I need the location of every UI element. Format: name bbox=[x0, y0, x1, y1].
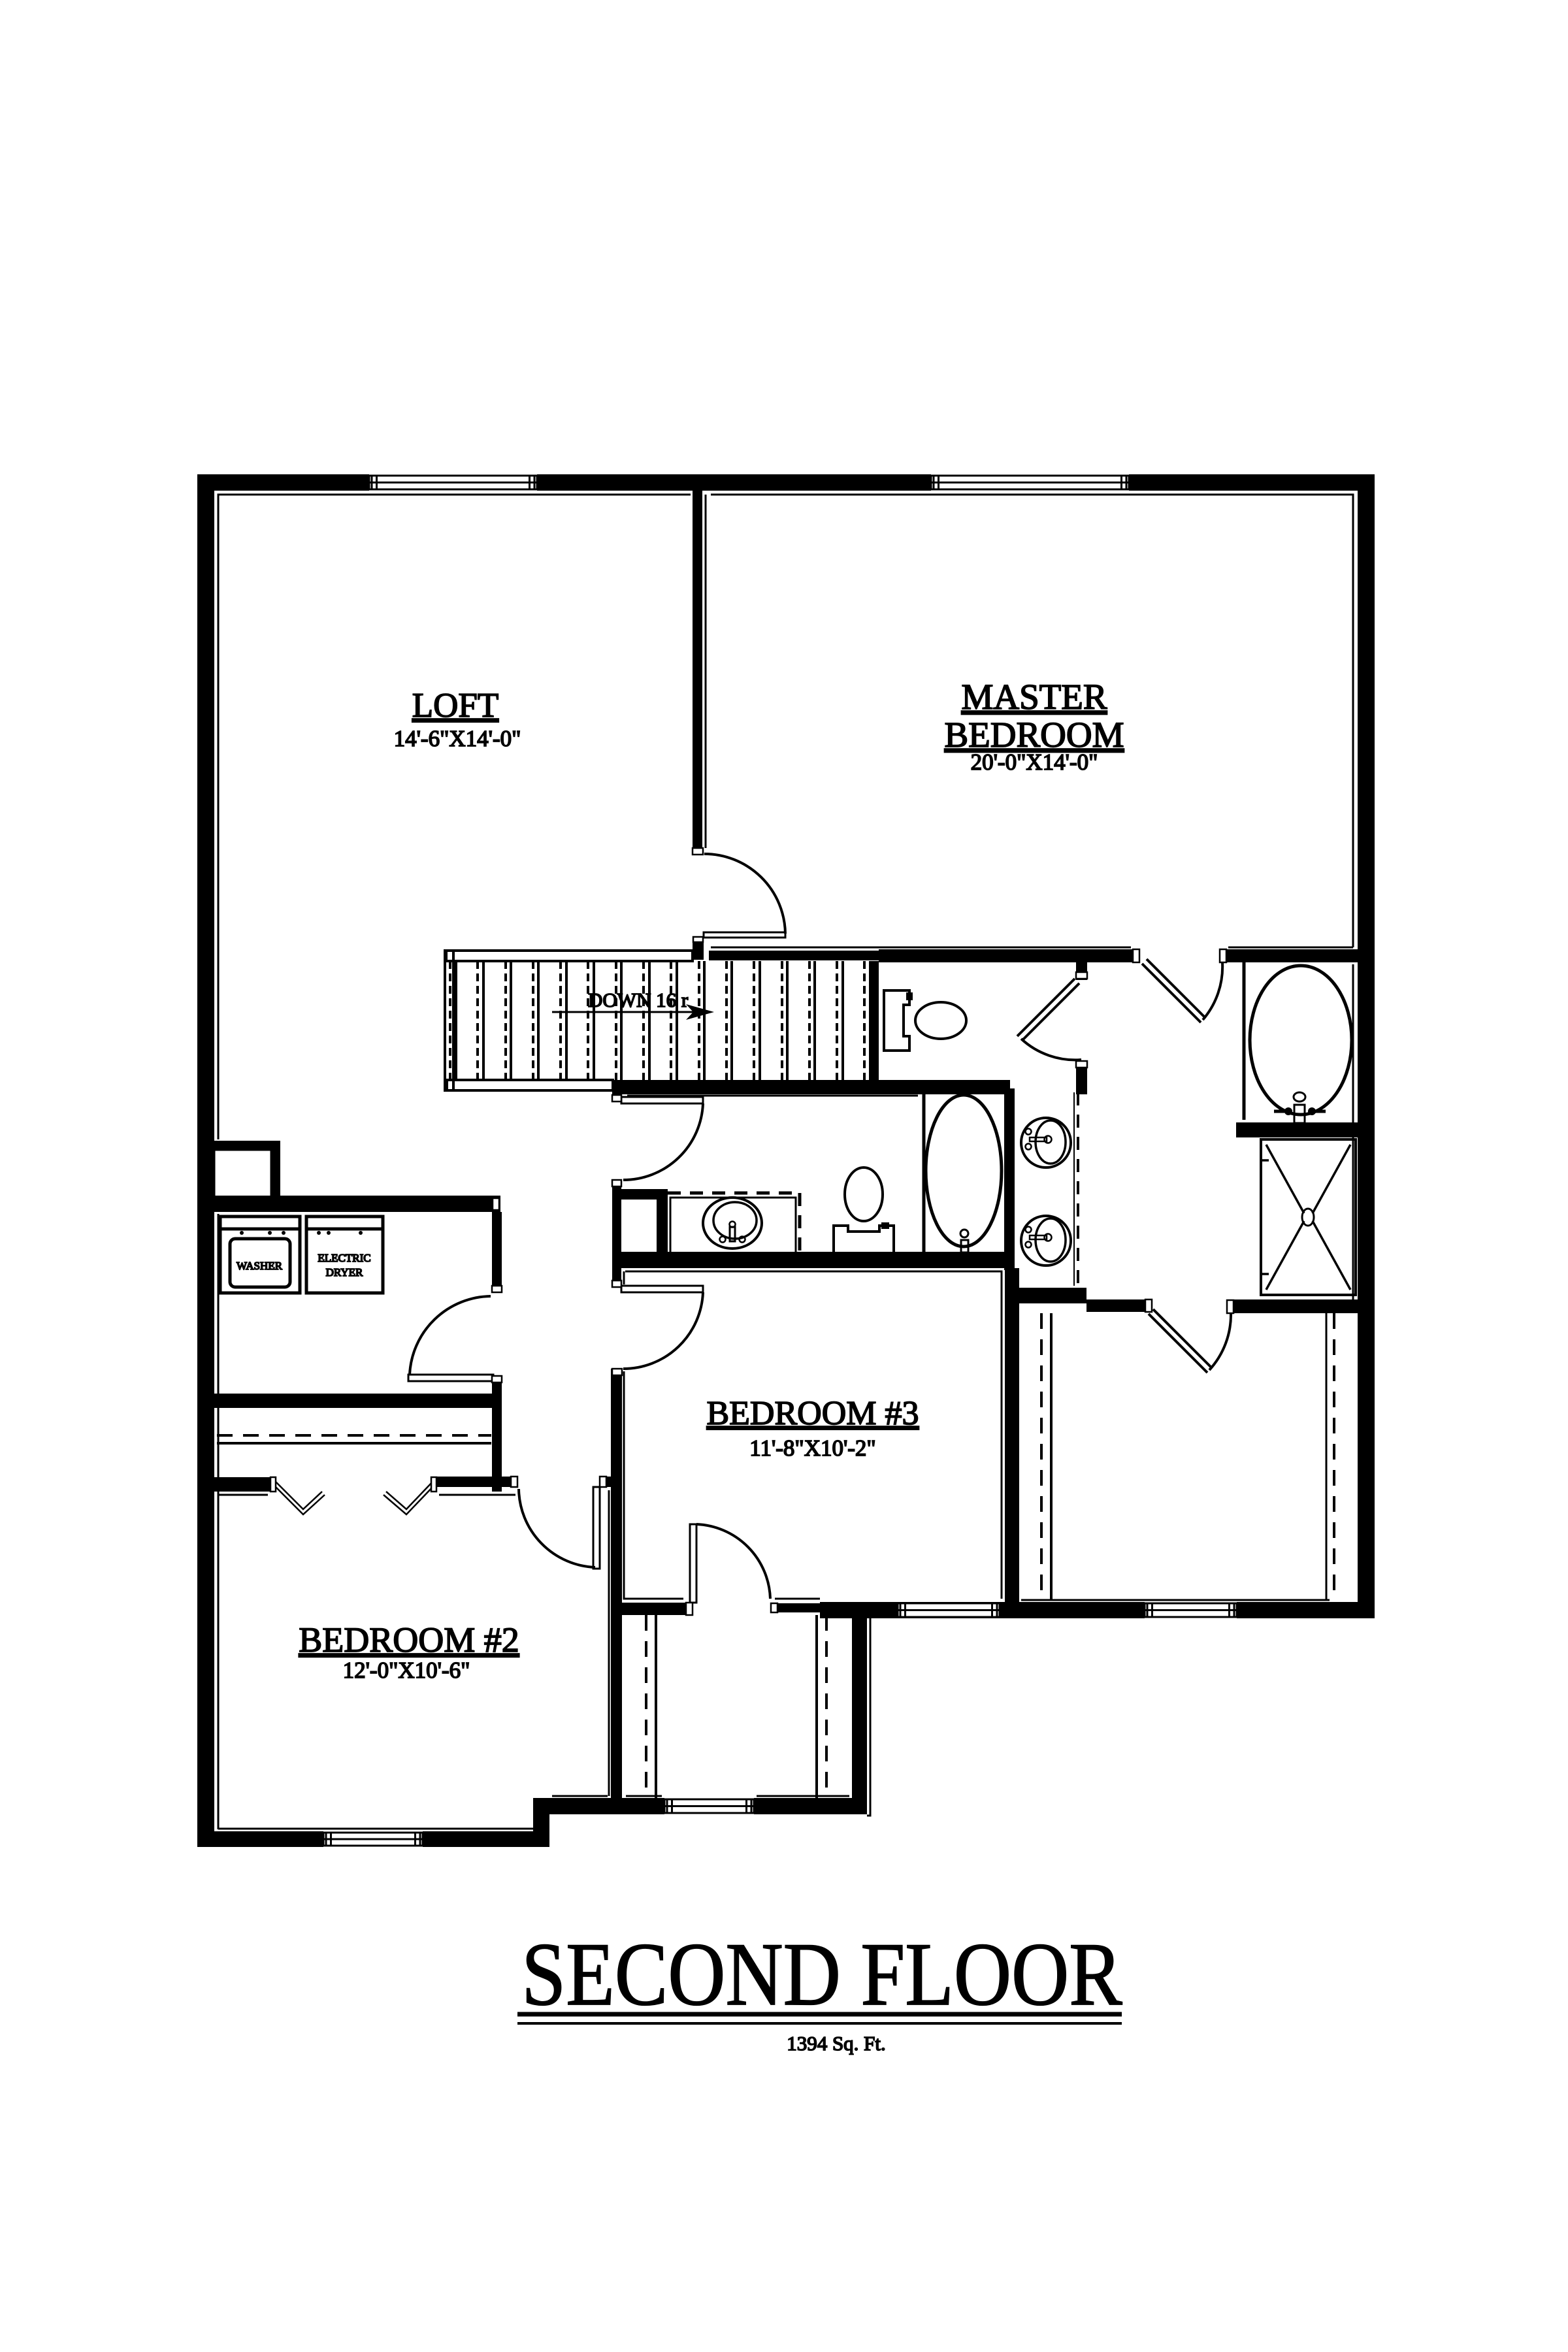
svg-text:ELECTRIC: ELECTRIC bbox=[318, 1252, 370, 1264]
svg-text:BEDROOM #3: BEDROOM #3 bbox=[706, 1395, 919, 1432]
svg-text:LOFT: LOFT bbox=[412, 687, 499, 725]
svg-text:1394 Sq. Ft.: 1394 Sq. Ft. bbox=[787, 2032, 886, 2055]
svg-text:11'-8"X10'-2": 11'-8"X10'-2" bbox=[749, 1435, 875, 1461]
svg-text:20'-0"X14'-0": 20'-0"X14'-0" bbox=[971, 749, 1098, 775]
svg-text:DOWN 16 r: DOWN 16 r bbox=[588, 988, 689, 1011]
svg-text:14'-6"X14'-0": 14'-6"X14'-0" bbox=[394, 726, 521, 751]
svg-text:BEDROOM #2: BEDROOM #2 bbox=[299, 1620, 519, 1659]
svg-text:DRYER: DRYER bbox=[326, 1266, 363, 1279]
svg-text:SECOND FLOOR: SECOND FLOOR bbox=[521, 1925, 1122, 2025]
svg-text:BEDROOM: BEDROOM bbox=[944, 715, 1124, 755]
svg-text:12'-0"X10'-6": 12'-0"X10'-6" bbox=[343, 1658, 470, 1683]
svg-text:WASHER: WASHER bbox=[237, 1260, 283, 1272]
svg-text:MASTER: MASTER bbox=[961, 677, 1107, 717]
